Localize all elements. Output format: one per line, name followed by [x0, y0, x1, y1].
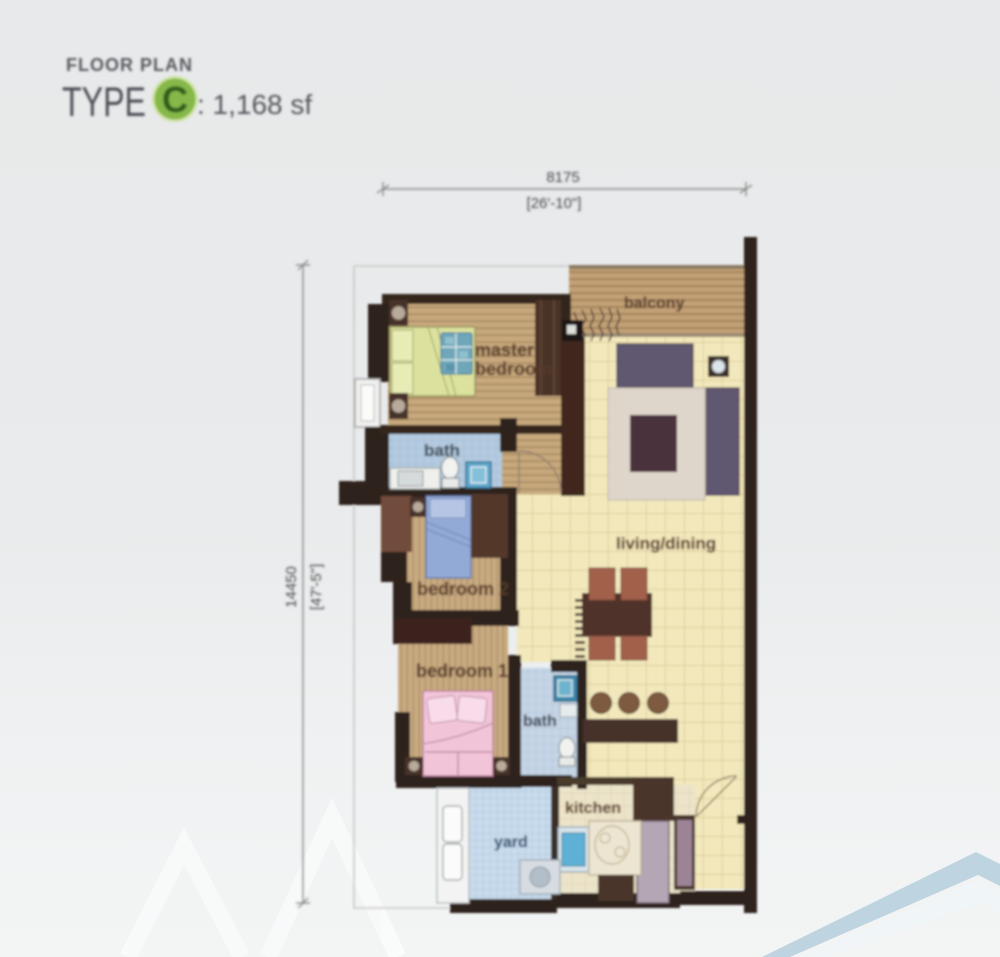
svg-text:bedroom 1: bedroom 1	[416, 661, 508, 681]
svg-text:living/dining: living/dining	[616, 534, 716, 553]
svg-text:bedroom 2: bedroom 2	[417, 579, 509, 599]
svg-text:bath: bath	[424, 441, 460, 460]
svg-text:C: C	[162, 79, 188, 120]
svg-text:[47'-5"]: [47'-5"]	[308, 564, 325, 611]
svg-text:14450: 14450	[283, 566, 300, 608]
svg-text:bath: bath	[523, 713, 557, 730]
svg-text:balcony: balcony	[624, 295, 685, 312]
svg-text:FLOOR PLAN: FLOOR PLAN	[66, 55, 193, 75]
svg-text:bedroom: bedroom	[475, 359, 552, 379]
svg-text:kitchen: kitchen	[565, 800, 621, 817]
svg-text:: 1,168 sf: : 1,168 sf	[197, 89, 312, 120]
svg-text:master: master	[475, 340, 534, 360]
svg-text:yard: yard	[494, 834, 528, 851]
svg-text:8175: 8175	[546, 169, 579, 186]
svg-text:[26'-10"]: [26'-10"]	[527, 195, 582, 212]
svg-text:TYPE: TYPE	[62, 78, 146, 125]
